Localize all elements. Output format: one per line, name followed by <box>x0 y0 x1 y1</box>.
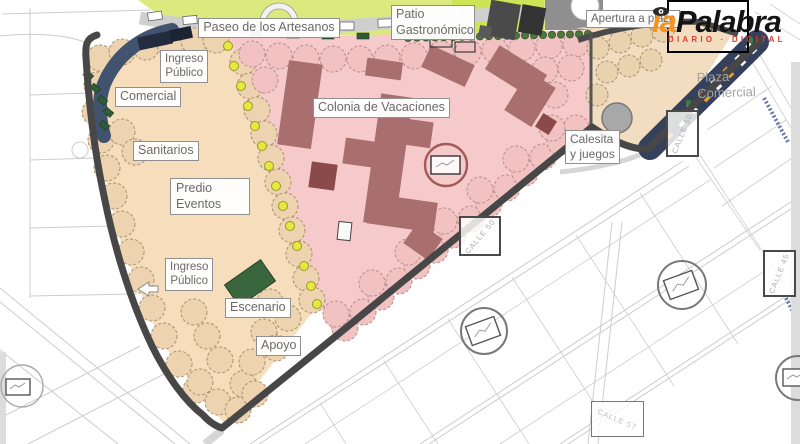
logo-wordmark: laPalabra <box>652 6 797 37</box>
lapalabra-logo: laPalabra DIARIO · DIGITAL <box>652 6 797 44</box>
street-box-calle-50-b: CALLE 50 <box>666 110 699 157</box>
site-plan-map: Paseo de los Artesanos Patio Gastronómic… <box>0 0 800 444</box>
logo-tagline: DIARIO · DIGITAL <box>652 35 797 44</box>
label-comercial: Comercial <box>115 87 181 107</box>
street-label: CALLE 57 <box>596 407 638 432</box>
street-box-calle-45: CALLE 45 <box>763 250 796 297</box>
label-escenario: Escenario <box>225 298 291 318</box>
street-box-calle-57: CALLE 57 <box>591 401 644 437</box>
block-marker <box>658 261 706 309</box>
street-label: CALLE 50 <box>463 217 497 255</box>
map-drawing <box>0 0 800 444</box>
logo-part-palabra: Palabra <box>676 4 781 39</box>
street-box-calle-50-a: CALLE 50 <box>459 216 501 256</box>
label-ingreso-publico-norte: Ingreso Público <box>160 50 208 83</box>
street-label: CALLE 50 <box>670 112 694 155</box>
logo-tagline-text: DIARIO · DIGITAL <box>668 35 786 44</box>
label-patio-gastronomico: Patio Gastronómico <box>391 5 475 40</box>
label-paseo-artesanos: Paseo de los Artesanos <box>198 18 340 38</box>
eye-icon <box>652 6 670 17</box>
block-marker <box>1 365 43 407</box>
label-sanitarios: Sanitarios <box>133 141 199 161</box>
label-plaza-comercial: Plaza Comercial <box>696 68 756 103</box>
roundabout <box>602 103 632 133</box>
label-apoyo: Apoyo <box>256 336 301 356</box>
street-label: CALLE 45 <box>767 252 791 295</box>
label-predio-eventos: Predio Eventos <box>170 178 250 215</box>
label-calesita-juegos: Calesita y juegos <box>565 130 620 164</box>
kiosk-box <box>337 221 352 240</box>
label-colonia-vacaciones: Colonia de Vacaciones <box>313 98 450 118</box>
block-marker <box>461 308 507 354</box>
label-ingreso-publico-sur: Ingreso Público <box>165 258 213 291</box>
